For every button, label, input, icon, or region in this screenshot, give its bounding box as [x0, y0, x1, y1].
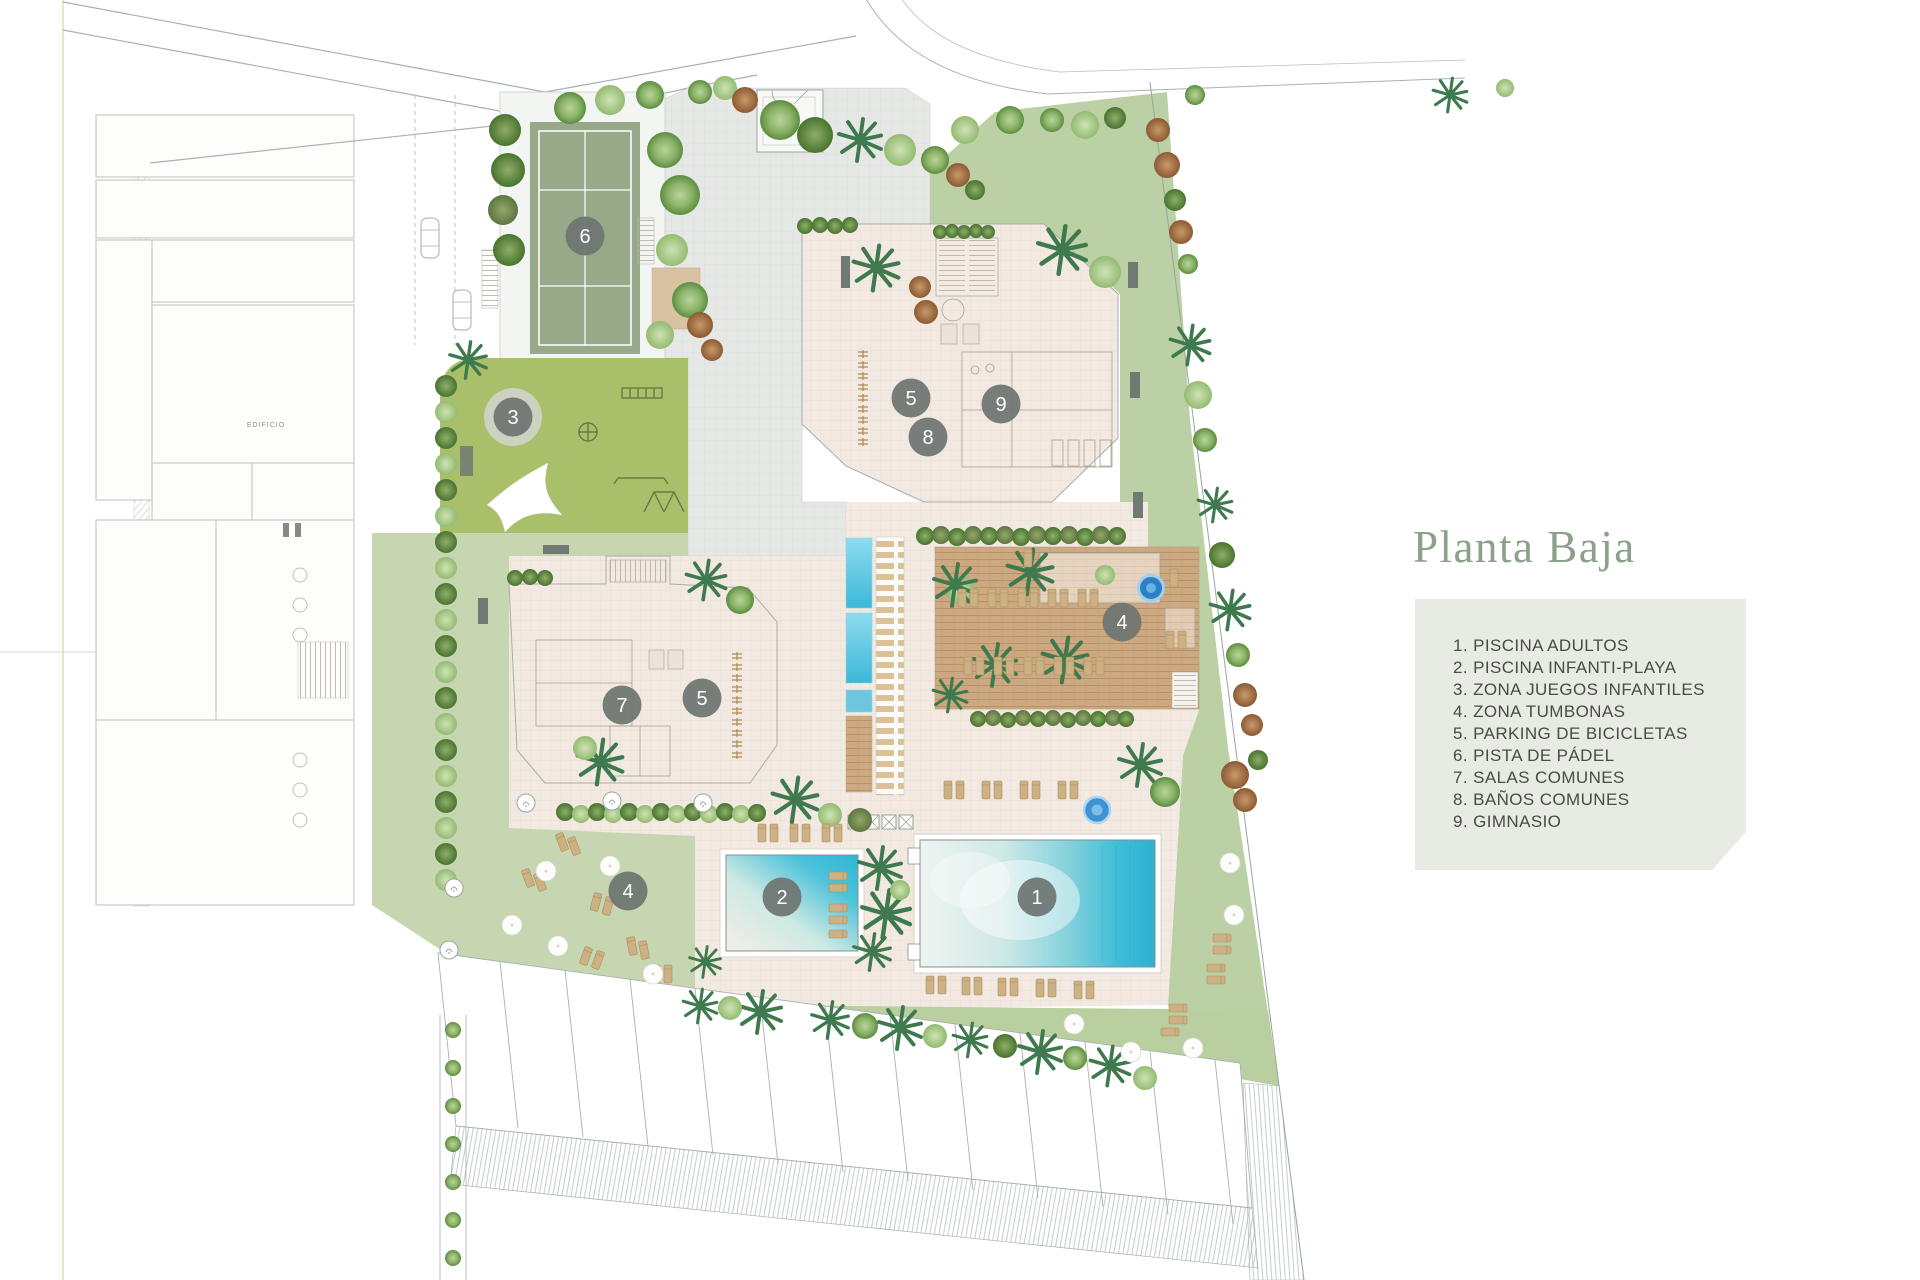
svg-text:9: 9 [995, 394, 1006, 416]
svg-text:4: 4 [622, 881, 633, 903]
legend-item: 5. PARKING DE BICICLETAS [1453, 723, 1730, 745]
marker-7: 7 [603, 686, 642, 725]
svg-text:4: 4 [1116, 612, 1127, 634]
svg-text:5: 5 [696, 688, 707, 710]
svg-text:7: 7 [616, 695, 627, 717]
building-north [802, 224, 1118, 502]
car-icon [421, 218, 439, 258]
legend-item: 1. PISCINA ADULTOS [1453, 635, 1730, 657]
legend-item: 4. ZONA TUMBONAS [1453, 701, 1730, 723]
marker-4: 4 [609, 872, 648, 911]
marker-8: 8 [909, 418, 948, 457]
marker-3: 3 [484, 388, 542, 446]
svg-text:3: 3 [507, 407, 518, 429]
marker-5: 5 [892, 379, 931, 418]
legend-item: 9. GIMNASIO [1453, 811, 1730, 833]
legend-box: 1. PISCINA ADULTOS2. PISCINA INFANTI-PLA… [1415, 599, 1746, 870]
jacuzzi-icon [1084, 797, 1110, 823]
spa-icon [1139, 576, 1164, 601]
marker-6: 6 [566, 217, 605, 256]
sun-deck [935, 547, 1199, 709]
car-icon [453, 290, 471, 330]
boardwalk [876, 537, 904, 795]
marker-5: 5 [683, 679, 722, 718]
legend-item: 7. SALAS COMUNES [1453, 767, 1730, 789]
svg-text:5: 5 [905, 388, 916, 410]
marker-2: 2 [763, 878, 802, 917]
legend-item: 3. ZONA JUEGOS INFANTILES [1453, 679, 1730, 701]
svg-text:6: 6 [579, 226, 590, 248]
legend-item: 2. PISCINA INFANTI-PLAYA [1453, 657, 1730, 679]
legend-list: 1. PISCINA ADULTOS2. PISCINA INFANTI-PLA… [1415, 599, 1746, 833]
legend-item: 8. BAÑOS COMUNES [1453, 789, 1730, 811]
lap-pool-strip [846, 537, 913, 829]
marker-9: 9 [982, 385, 1021, 424]
neighbor-label: EDIFICIO [247, 422, 285, 429]
svg-text:2: 2 [776, 887, 787, 909]
marker-4: 4 [1103, 603, 1142, 642]
neighbor-buildings: EDIFICIO [0, 0, 354, 1280]
svg-text:1: 1 [1031, 887, 1042, 909]
site-plan-page: EDIFICIO [0, 0, 1920, 1280]
svg-text:8: 8 [922, 427, 933, 449]
page-title: Planta Baja [1413, 521, 1636, 573]
marker-1: 1 [1018, 878, 1057, 917]
legend-item: 6. PISTA DE PÁDEL [1453, 745, 1730, 767]
